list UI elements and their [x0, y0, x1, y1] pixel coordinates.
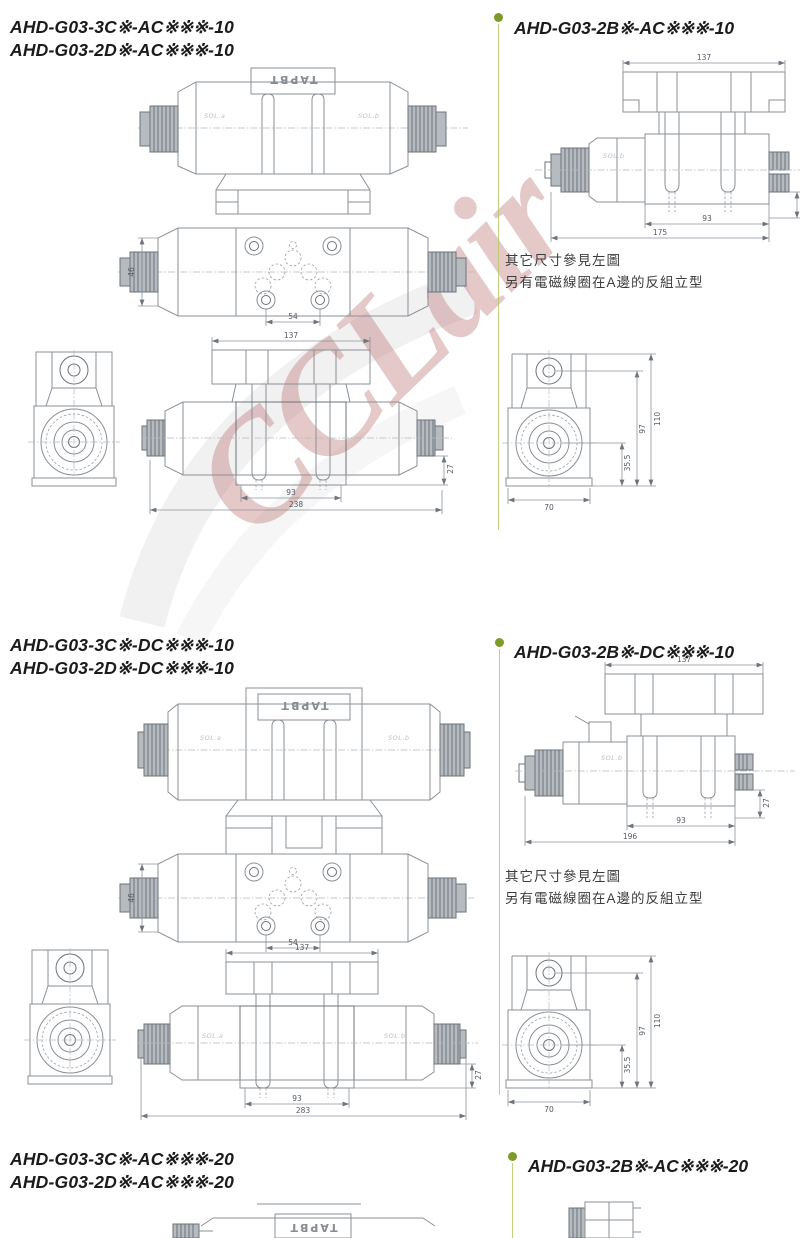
- nameplate-text: TAPBT: [268, 73, 317, 86]
- dim-body-height: 46: [127, 267, 136, 277]
- sol-b-label: SOL.b: [358, 112, 380, 120]
- dim-end-base: 70: [544, 503, 554, 512]
- side-view-drawing-ac10: TAPBT SOL.a SOL.b: [138, 62, 468, 218]
- dim-side-offset: 27: [446, 464, 455, 474]
- front-view-drawing-ac10: 137 27 93 238: [142, 332, 456, 518]
- sol-a-label: SOL.a: [200, 734, 221, 742]
- dim-end-top: 97: [638, 1026, 647, 1036]
- dim-total-length: 238: [289, 500, 304, 509]
- model-names-left-dc10: AHD-G03-3C※-DC※※※-10 AHD-G03-2D※-DC※※※-1…: [10, 634, 234, 680]
- plan-view-drawing-ac10: 46 54: [118, 212, 474, 330]
- dim-plate-width-right: 137: [677, 655, 692, 664]
- sol-b-label: SOL.b: [388, 734, 410, 742]
- side-view-drawing-dc10: TAPBT SOL.a SOL.b: [138, 678, 472, 860]
- dim-bolt-span-right: 93: [702, 214, 712, 223]
- nameplate-text: TAPBT: [279, 699, 328, 712]
- sol-b-label: SOL.b: [384, 1032, 406, 1040]
- side-view-drawing-right-dc10: 137 SOL.b 27 93 196: [505, 660, 800, 855]
- dim-end-top: 97: [638, 424, 647, 434]
- front-view-drawing-dc10: 137 SOL.a SOL.b 27 93 283: [138, 946, 482, 1124]
- side-view-drawing-right-ac10: 137 SOL.b 27 93 175: [505, 56, 800, 248]
- dim-port-span: 54: [288, 312, 298, 321]
- section-rule-ac20: [512, 1163, 513, 1238]
- catalog-page: CCLair AHD-G03-3C※-AC※※※-10 AHD-G03-2D※-…: [0, 0, 800, 1238]
- model-names-left-ac10: AHD-G03-3C※-AC※※※-10 AHD-G03-2D※-AC※※※-1…: [10, 16, 234, 62]
- dim-end-mid: 35.5: [623, 1056, 632, 1073]
- dim-end-mid: 35.5: [623, 454, 632, 471]
- dim-end-height: 110: [653, 412, 662, 427]
- nameplate-text: TAPBT: [288, 1221, 337, 1234]
- dim-end-base: 70: [544, 1105, 554, 1114]
- plan-view-drawing-dc10: 46 54: [118, 838, 474, 956]
- model-names-left-ac20: AHD-G03-3C※-AC※※※-20 AHD-G03-2D※-AC※※※-2…: [10, 1148, 234, 1194]
- section-bullet-ac20: [508, 1152, 517, 1161]
- sol-a-label: SOL.a: [204, 112, 225, 120]
- sol-b-label: SOL.b: [603, 152, 625, 160]
- coil-drawing-partial-ac20: [535, 1198, 645, 1238]
- notes-dc10: 其它尺寸參見左圖另有電磁線圈在A邊的反組立型: [505, 866, 704, 910]
- dim-bolt-span: 93: [286, 488, 296, 497]
- dim-plate-width: 137: [284, 331, 299, 340]
- dim-side-offset: 27: [474, 1070, 483, 1080]
- dim-bolt-span-right: 93: [676, 816, 686, 825]
- end-view-drawing-left-dc10: [22, 946, 118, 1092]
- side-view-drawing-partial-ac20: TAPBT: [165, 1200, 465, 1238]
- sol-b-label: SOL.b: [601, 754, 623, 762]
- sol-a-label: SOL.a: [202, 1032, 223, 1040]
- end-view-drawing-right-dc10: 110 97 35.5 70: [496, 948, 671, 1116]
- dim-side-offset-right: 27: [762, 798, 771, 808]
- end-view-drawing-left-ac10: [26, 348, 122, 494]
- dim-body-height: 46: [127, 893, 136, 903]
- section-bullet-dc10: [495, 638, 504, 647]
- model-name-right-ac10: AHD-G03-2B※-AC※※※-10: [514, 18, 734, 39]
- dim-right-total-length: 175: [653, 228, 668, 237]
- section-bullet-ac10: [494, 13, 503, 22]
- dim-plate-width-right: 137: [697, 53, 712, 62]
- model-name-right-ac20: AHD-G03-2B※-AC※※※-20: [528, 1156, 748, 1177]
- dim-end-height: 110: [653, 1014, 662, 1029]
- notes-ac10: 其它尺寸參見左圖另有電磁線圈在A邊的反組立型: [505, 250, 704, 294]
- dim-bolt-span: 93: [292, 1094, 302, 1103]
- dim-total-length: 283: [296, 1106, 311, 1115]
- dim-right-total-length: 196: [623, 832, 638, 841]
- end-view-drawing-right-ac10: 110 97 35.5 70: [496, 346, 671, 514]
- dim-plate-width: 137: [295, 943, 310, 952]
